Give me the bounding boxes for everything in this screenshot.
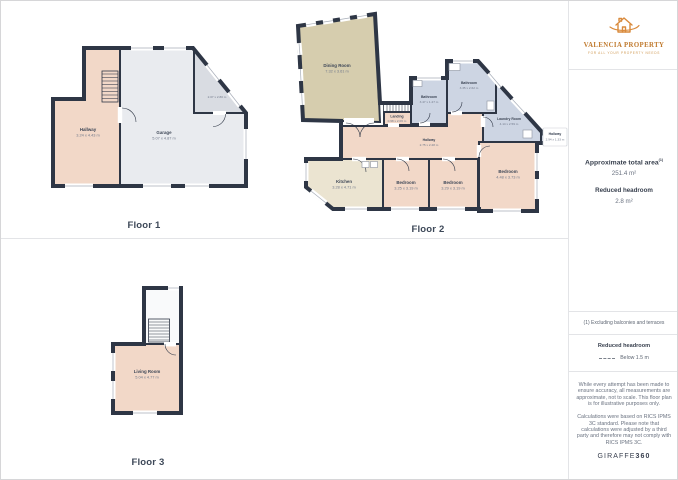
floor2-laundry-dims: 4.14 x 2.59 m xyxy=(500,122,519,126)
floor3-room-labels: Living Room 5.04 x 4.77 m xyxy=(134,369,161,380)
floor1-hallway-room xyxy=(53,48,120,186)
floor1-garage-label: Garage xyxy=(156,130,172,135)
floor-2-plan: Hallway 2.94 x 1.33 m Dining Room 7.32 x… xyxy=(286,6,571,221)
floor2-bedroom-left-dims: 3.25 x 3.19 m xyxy=(394,186,418,191)
floor2-hallway-small-callout: Hallway 2.94 x 1.33 m xyxy=(543,128,567,146)
floor2-dining-dims: 7.32 x 3.61 m xyxy=(325,69,349,74)
total-area-title: Approximate total area(1) xyxy=(569,158,678,166)
floor2-hallway-small-label: Hallway xyxy=(549,132,562,136)
footnote-text: (1) Excluding balconies and terraces xyxy=(584,320,665,326)
total-area-title-text: Approximate total area xyxy=(585,159,659,166)
giraffe360-logo-360: 360 xyxy=(636,453,651,460)
floor2-kitchen-dims: 3.28 x 4.71 m xyxy=(332,185,356,190)
floor2-bedroom-right-label: Bedroom xyxy=(498,169,517,174)
floor3-living-dims: 5.04 x 4.77 m xyxy=(135,375,159,380)
reduced-headroom-title: Reduced headroom xyxy=(569,187,678,194)
floor2-bathroom-large-label: Bathroom xyxy=(461,81,477,85)
floor2-hallway-label: Hallway xyxy=(423,138,436,142)
disclaimer-paragraph-2: Calculations were based on RICS IPMS 3C … xyxy=(576,414,672,446)
floor-3-plan: Living Room 5.04 x 4.77 m xyxy=(101,281,221,426)
floor1-store-dims: 2.07 x 2.80 m xyxy=(208,95,227,99)
floor2-bedroom-mid-label: Bedroom xyxy=(443,180,462,185)
disclaimer-section: While every attempt has been made to ens… xyxy=(569,372,678,480)
logo-section: VALENCIA PROPERTY FOR ALL YOUR PROPERTY … xyxy=(569,1,678,70)
legend-row: Below 1.5 m xyxy=(569,355,678,361)
floor1-hallway-label: Hallway xyxy=(80,127,97,132)
total-area-footnote-mark: (1) xyxy=(659,158,663,162)
dashed-line-icon xyxy=(599,358,615,359)
floor1-hallway-dims: 3.24 x 4.43 m xyxy=(76,133,100,138)
reduced-headroom-value: 2.8 m² xyxy=(569,198,678,205)
floor2-dining-label: Dining Room xyxy=(323,63,350,68)
footnote-section: (1) Excluding balconies and terraces xyxy=(569,312,678,335)
giraffe360-logo: GIRAFFE360 xyxy=(576,453,672,460)
floor2-bathroom-small-dims: 3.47 x 1.27 m xyxy=(420,100,439,104)
floor1-garage-dims: 5.07 x 4.87 m xyxy=(152,136,176,141)
info-panel: VALENCIA PROPERTY FOR ALL YOUR PROPERTY … xyxy=(569,1,678,480)
floor2-bathroom-large-dims: 3.35 x 2.62 m xyxy=(460,86,479,90)
brand-name: VALENCIA PROPERTY xyxy=(569,42,678,49)
floor2-kitchen-label: Kitchen xyxy=(336,179,352,184)
floor1-garage-room xyxy=(120,48,246,186)
floor-3-rooms xyxy=(113,288,181,413)
house-logo-icon xyxy=(606,14,642,40)
floor2-landing-label: Landing xyxy=(390,115,403,119)
floor2-laundry-label: Laundry Room xyxy=(497,117,521,121)
total-area-value: 251.4 m² xyxy=(569,170,678,177)
floor2-bathroom-small-label: Bathroom xyxy=(421,95,437,99)
floor2-bedroom-left-label: Bedroom xyxy=(396,180,415,185)
floor2-bedroom-right-dims: 4.48 x 3.73 m xyxy=(496,175,520,180)
legend-section: Reduced headroom Below 1.5 m xyxy=(569,335,678,372)
floorplan-page: Hallway 3.24 x 4.43 m Garage 5.07 x 4.87… xyxy=(0,0,678,480)
brand-tagline: FOR ALL YOUR PROPERTY NEEDS xyxy=(569,51,678,55)
floor2-bedroom-mid-dims: 3.29 x 3.19 m xyxy=(441,186,465,191)
floor2-stairs xyxy=(384,104,411,112)
main-divider-horizontal xyxy=(1,238,568,239)
floor-3-label: Floor 3 xyxy=(88,457,208,468)
floor2-landing-dims: 0.98 x 2.06 m xyxy=(388,119,407,123)
floor-1-rooms xyxy=(53,48,246,186)
floor-2-label: Floor 2 xyxy=(368,224,488,235)
disclaimer-paragraph-1: While every attempt has been made to ens… xyxy=(576,382,672,407)
legend-title: Reduced headroom xyxy=(569,343,678,349)
legend-value: Below 1.5 m xyxy=(620,355,649,361)
floor2-hallway-small-dims: 2.94 x 1.33 m xyxy=(546,138,565,142)
floor2-hallway-dims: 2.75 x 2.28 m xyxy=(420,143,439,147)
floor-1-plan: Hallway 3.24 x 4.43 m Garage 5.07 x 4.87… xyxy=(41,31,256,196)
floor3-living-label: Living Room xyxy=(134,369,161,374)
area-section: Approximate total area(1) 251.4 m² Reduc… xyxy=(569,70,678,312)
floor3-stairwell-area xyxy=(144,288,181,344)
giraffe360-logo-text: GIRAFFE xyxy=(597,453,635,460)
floor-1-label: Floor 1 xyxy=(84,220,204,231)
